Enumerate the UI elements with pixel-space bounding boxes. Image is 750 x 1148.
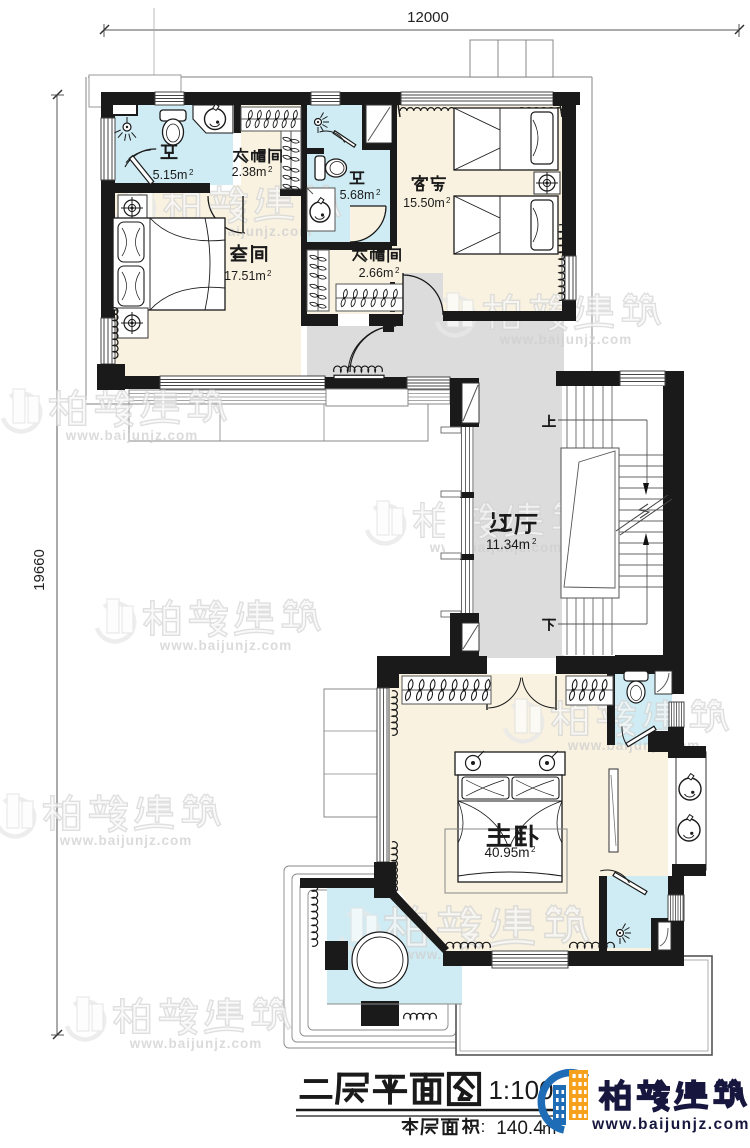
svg-text:40.95m: 40.95m <box>484 845 529 860</box>
svg-text:12000: 12000 <box>407 9 449 26</box>
svg-text:www.baijunjz.com: www.baijunjz.com <box>65 428 199 443</box>
svg-text:2: 2 <box>532 537 537 546</box>
svg-text:2: 2 <box>189 168 194 177</box>
svg-text:11.34m: 11.34m <box>486 537 530 552</box>
svg-text::: : <box>481 1117 486 1136</box>
svg-text:17.51m: 17.51m <box>224 269 266 283</box>
svg-text:2: 2 <box>395 266 400 275</box>
svg-text:2.38m: 2.38m <box>232 165 267 179</box>
svg-text:15.50m: 15.50m <box>403 196 445 210</box>
svg-text:www.baijunjz.com: www.baijunjz.com <box>499 332 633 347</box>
svg-text:2: 2 <box>268 165 273 174</box>
svg-text:140.4: 140.4 <box>496 1118 544 1139</box>
svg-text:19660: 19660 <box>31 549 48 591</box>
svg-text:2: 2 <box>531 845 536 854</box>
svg-text:5.68m: 5.68m <box>340 188 375 202</box>
svg-text:5.15m: 5.15m <box>153 168 188 182</box>
svg-text:www.baijunjz.com: www.baijunjz.com <box>159 638 293 653</box>
svg-text:www.baijunjz.com: www.baijunjz.com <box>59 833 193 848</box>
svg-text:2: 2 <box>446 196 451 205</box>
svg-text:2: 2 <box>267 269 272 278</box>
svg-text:www.baijunjz.com: www.baijunjz.com <box>591 1116 750 1133</box>
svg-text:2.66m: 2.66m <box>359 266 394 280</box>
svg-text:2: 2 <box>376 188 381 197</box>
svg-text:www.baijunjz.com: www.baijunjz.com <box>129 1036 263 1051</box>
